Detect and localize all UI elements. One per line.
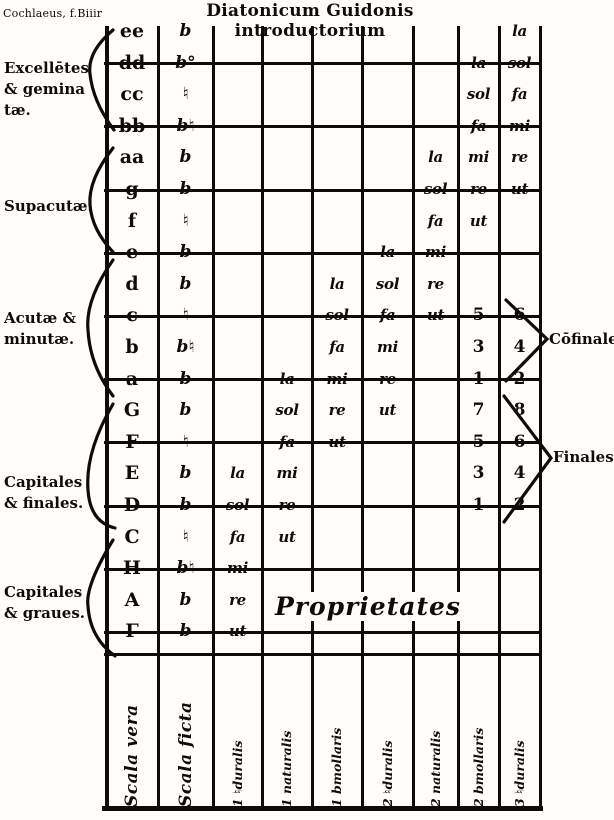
book-page: Cochlaeus, f.Biiir Diatonicum Guidonis i… <box>0 0 614 820</box>
bracket-confinales <box>506 300 547 381</box>
brace-overlay <box>0 0 614 820</box>
brace-capitales-finales <box>88 404 115 528</box>
brace-capitales-graves <box>88 540 115 656</box>
proprietates-label: Proprietates <box>270 592 466 621</box>
brace-acutae <box>88 260 113 396</box>
brace-superacutae <box>90 148 113 252</box>
brace-excellentes <box>90 30 114 130</box>
bracket-finales <box>504 396 551 522</box>
